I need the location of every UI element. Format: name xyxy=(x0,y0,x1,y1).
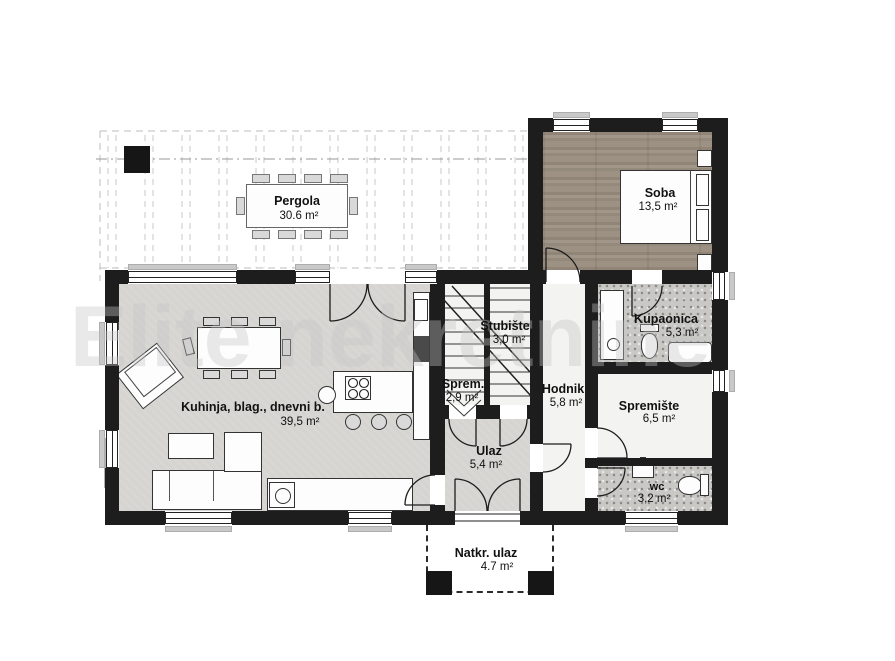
door-spremiste xyxy=(597,428,627,458)
door-entry-left xyxy=(455,479,487,511)
label-hodnik-name: Hodnik xyxy=(542,382,584,396)
door-ulaz-hodnik xyxy=(543,444,571,472)
label-wc-area: 3,2 m² xyxy=(638,493,671,505)
door-living-ulaz xyxy=(405,475,435,505)
label-pergola-name: Pergola xyxy=(274,194,320,208)
door-stair-left xyxy=(449,419,476,446)
label-natkr-ulaz-name: Natkr. ulaz xyxy=(455,546,518,560)
label-pergola-area: 30.6 m² xyxy=(280,210,319,222)
label-soba-area: 13,5 m² xyxy=(639,201,678,213)
label-soba-name: Soba xyxy=(645,186,676,200)
label-natkr-ulaz-area: 4.7 m² xyxy=(481,561,514,573)
door-entry-right xyxy=(488,479,520,511)
door-stair-right xyxy=(500,419,527,446)
label-sprem-name: Sprem. xyxy=(442,377,484,391)
label-hodnik-area: 5,8 m² xyxy=(550,397,583,409)
floor-plan: Elite nekretnine Pergola 30.6 m² Soba 13… xyxy=(0,0,895,661)
label-kupaonica-name: Kupaonica xyxy=(634,312,698,326)
label-ulaz-area: 5,4 m² xyxy=(470,459,503,471)
label-spremiste-area: 6,5 m² xyxy=(643,413,676,425)
label-sprem-area: 2,9 m² xyxy=(446,392,479,404)
door-soba xyxy=(546,248,580,282)
label-stubiste-name: Stubište xyxy=(480,319,529,333)
door-wc xyxy=(597,468,625,496)
entry-threshold xyxy=(455,514,520,521)
label-wc-name: wc xyxy=(650,481,665,493)
label-spremiste-name: Spremište xyxy=(619,399,679,413)
label-stubiste-area: 3,0 m² xyxy=(493,334,526,346)
watermark: Elite nekretnine xyxy=(70,288,710,387)
label-ulaz-name: Ulaz xyxy=(476,444,502,458)
label-kuhinja-area: 39,5 m² xyxy=(281,416,320,428)
label-kupaonica-area: 5,3 m² xyxy=(666,327,699,339)
label-kuhinja-name: Kuhinja, blag., dnevni b. xyxy=(181,400,325,414)
